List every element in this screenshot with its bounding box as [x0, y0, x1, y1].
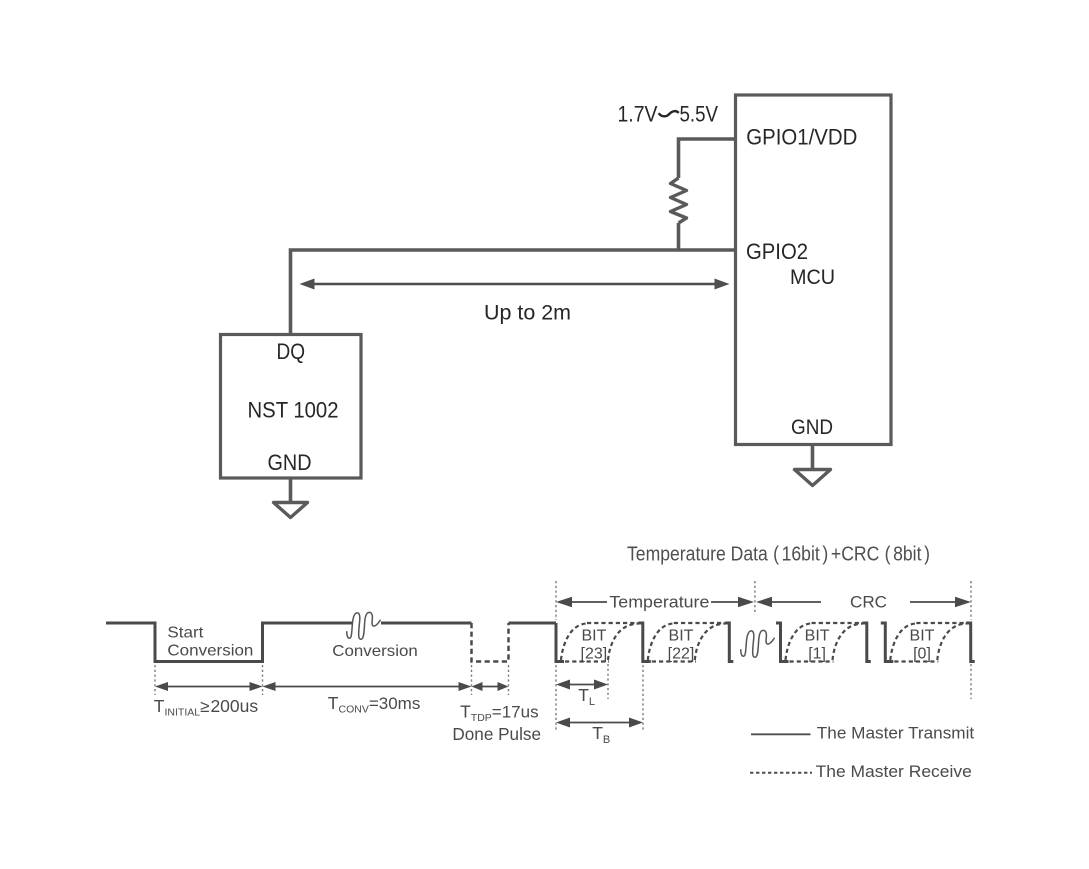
svg-text:MCU: MCU [790, 266, 835, 289]
svg-text:CRC: CRC [850, 593, 887, 612]
svg-text:DQ: DQ [277, 339, 306, 364]
svg-text:BIT: BIT [669, 628, 694, 645]
svg-text:Start: Start [167, 624, 204, 641]
svg-text:1.7V: 1.7V [618, 102, 658, 127]
svg-text:The Master Transmit: The Master Transmit [817, 724, 975, 743]
svg-text:Conversion: Conversion [167, 643, 253, 660]
svg-text:[0]: [0] [913, 646, 931, 663]
svg-text:The Master Receive: The Master Receive [816, 762, 972, 781]
svg-text:Up to 2m: Up to 2m [484, 302, 571, 325]
svg-text:Conversion: Conversion [332, 643, 418, 660]
svg-text:5.5V: 5.5V [680, 102, 719, 127]
svg-text:[22]: [22] [668, 646, 695, 663]
svg-text:Temperature Data(16bit)+CRC(8b: Temperature Data(16bit)+CRC(8bit) [627, 544, 930, 566]
svg-text:BIT: BIT [910, 628, 935, 645]
svg-text:NST 1002: NST 1002 [248, 398, 339, 423]
svg-text:GND: GND [268, 450, 312, 475]
svg-text:GND: GND [791, 416, 833, 439]
svg-text:GPIO2: GPIO2 [746, 239, 808, 264]
svg-text:GPIO1/VDD: GPIO1/VDD [746, 125, 857, 150]
svg-text:Done Pulse: Done Pulse [452, 724, 541, 744]
svg-text:[23]: [23] [581, 646, 608, 663]
svg-text:BIT: BIT [805, 628, 830, 645]
svg-text:Temperature: Temperature [609, 593, 709, 612]
svg-text:[1]: [1] [808, 646, 826, 663]
svg-text:BIT: BIT [581, 628, 606, 645]
